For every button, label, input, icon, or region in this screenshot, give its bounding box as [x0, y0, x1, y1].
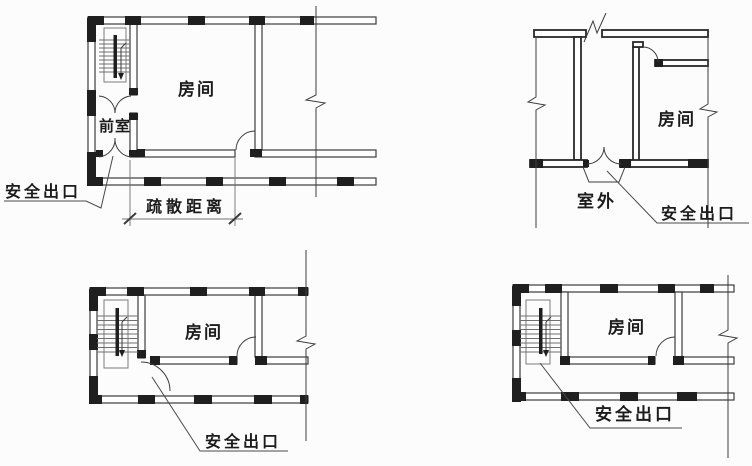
- room-label: 房间: [658, 109, 696, 129]
- safety-exit-label: 安全出口: [205, 432, 281, 451]
- safety-exit-label: 安全出口: [595, 404, 675, 424]
- exit-double-door: [583, 147, 625, 182]
- room-door-arc: [237, 337, 256, 356]
- room-label: 房间: [185, 322, 223, 342]
- double-door-arcs: [587, 147, 621, 164]
- break-mark: [719, 275, 737, 458]
- fire-exit-diagrams-page: 疏散距离 前室 房间 安全出口 房间 室外: [0, 0, 752, 466]
- room-label: 房间: [178, 79, 216, 99]
- floor-plans-canvas: 疏散距离 前室 房间 安全出口 房间 室外: [0, 0, 752, 466]
- dimension-evacuation-distance: 疏散距离: [122, 158, 243, 226]
- stair-flight: [520, 300, 561, 364]
- stair-flight: [97, 300, 138, 368]
- safety-exit-label: 安全出口: [661, 204, 737, 223]
- double-door-arc-vestibule: [99, 138, 131, 157]
- stair-flight: [99, 28, 130, 82]
- vestibule-label: 前室: [99, 117, 131, 135]
- safety-exit-callout: 安全出口: [152, 377, 288, 451]
- safety-exit-label: 安全出口: [5, 182, 81, 201]
- room-label: 房间: [608, 317, 646, 337]
- floor-plan-bottom-left: 房间 安全出口: [89, 250, 315, 451]
- floor-plan-top-right: 房间 室外 安全出口: [528, 13, 749, 228]
- break-mark: [306, 6, 325, 197]
- outside-label: 室外: [577, 191, 617, 211]
- stair-door-arc: [141, 362, 170, 391]
- stair-direction-arrow: [121, 43, 126, 73]
- evacuation-distance-label: 疏散距离: [146, 197, 226, 216]
- double-door-arc-stair: [99, 96, 131, 113]
- break-mark-left: [528, 37, 545, 228]
- floor-plan-top-left: 疏散距离 前室 房间 安全出口: [4, 6, 376, 226]
- safety-exit-callout: 安全出口: [607, 171, 749, 223]
- floor-plan-bottom-right: 房间 安全出口: [512, 275, 737, 458]
- room-door-arc: [656, 337, 675, 356]
- break-mark: [297, 250, 315, 441]
- room-door-arc: [236, 131, 255, 150]
- outward-door-leaves: [583, 167, 625, 182]
